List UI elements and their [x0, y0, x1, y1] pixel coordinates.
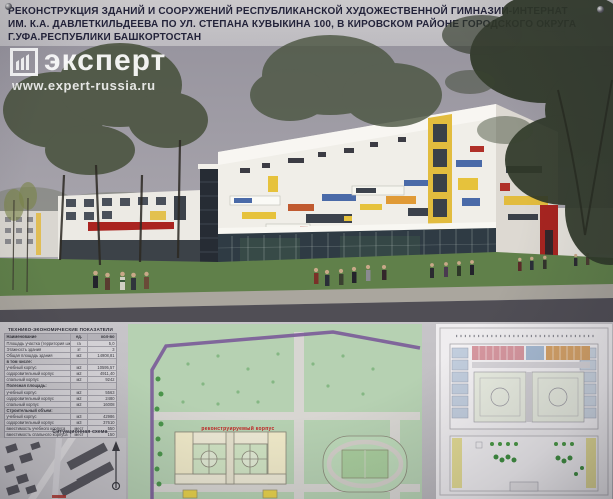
- table-cell: Площадь участка (территория школы): [5, 341, 70, 346]
- expert-columns-logo-icon: [10, 48, 38, 76]
- table-cell: Общая площадь здания: [5, 353, 70, 358]
- expert-watermark: эксперт www.expert-russia.ru: [10, 46, 166, 93]
- table-cell: Этажность здания: [5, 347, 70, 352]
- table-cell: 5,0: [88, 341, 116, 346]
- tep-table-title: ТЕХНИКО-ЭКОНОМИЧЕСКИЕ ПОКАЗАТЕЛИ: [4, 327, 117, 332]
- table-cell: 5563: [88, 390, 116, 395]
- table-cell: [70, 359, 88, 364]
- table-cell: [88, 383, 116, 388]
- stadium: [323, 436, 407, 492]
- table-cell: 37610: [88, 420, 116, 425]
- table-header-row: Наименование ед. кол-во: [5, 334, 116, 341]
- table-cell: оздоровительный корпус: [5, 371, 70, 376]
- tep-table: ТЕХНИКО-ЭКОНОМИЧЕСКИЕ ПОКАЗАТЕЛИ Наимено…: [4, 327, 117, 439]
- table-cell: [88, 408, 116, 413]
- table-header-cell: Наименование: [5, 334, 70, 340]
- table-cell: 9242: [88, 377, 116, 382]
- table-header-cell: кол-во: [88, 334, 116, 340]
- table-cell: Полезная площадь:: [5, 383, 70, 388]
- table-cell: [88, 359, 116, 364]
- table-header-cell: ед.: [70, 334, 88, 340]
- table-cell: м2: [70, 353, 88, 358]
- mounting-pin-right: [597, 6, 604, 13]
- table-cell: 10595,57: [88, 365, 116, 370]
- table-cell: м3: [70, 414, 88, 419]
- table-cell: [70, 383, 88, 388]
- left-wing-building: [58, 190, 202, 263]
- tep-table-grid: Наименование ед. кол-во Площадь участка …: [4, 333, 117, 439]
- table-cell: м3: [70, 420, 88, 425]
- table-cell: 2480: [88, 396, 116, 401]
- table-cell: 14908,81: [88, 353, 116, 358]
- master-plan: [128, 324, 422, 499]
- table-cell: в том числе:: [5, 359, 70, 364]
- table-cell: 4911,40: [88, 371, 116, 376]
- glass-stair-tower: [198, 164, 220, 263]
- upper-floor-plan: [450, 344, 598, 429]
- table-cell: 16008: [88, 402, 116, 407]
- landscape-plan: [436, 324, 612, 499]
- table-cell: м2: [70, 402, 88, 407]
- table-cell: оздоровительный корпус: [5, 420, 70, 425]
- situational-scheme-map: [0, 438, 126, 499]
- table-cell: учебный корпус: [5, 414, 70, 419]
- table-cell: учебный корпус: [5, 365, 70, 370]
- billboard-poster: РЕКОНСТРУКЦИЯ ЗДАНИЙ И СООРУЖЕНИЙ РЕСПУБ…: [0, 0, 613, 499]
- watermark-url: www.expert-russia.ru: [12, 78, 166, 93]
- reconstructed-building-label: реконструируемый корпус: [193, 426, 283, 432]
- lower-landscape-plan: [450, 436, 598, 491]
- table-cell: Строительный объем:: [5, 408, 70, 413]
- table-cell: м2: [70, 377, 88, 382]
- table-cell: учебный корпус: [5, 390, 70, 395]
- reconstructed-building-footprint: [175, 432, 286, 484]
- table-cell: га: [70, 341, 88, 346]
- table-cell: спальный корпус: [5, 377, 70, 382]
- table-cell: м2: [70, 390, 88, 395]
- watermark-brand: эксперт: [44, 46, 166, 76]
- map-red-label: [52, 495, 66, 498]
- mounting-pin-left: [5, 3, 12, 10]
- situational-scheme-label: Ситуационная схема: [36, 429, 124, 435]
- table-cell: м2: [70, 371, 88, 376]
- table-cell: эт: [70, 347, 88, 352]
- table-cell: 3: [88, 347, 116, 352]
- table-cell: оздоровительный корпус: [5, 396, 70, 401]
- table-cell: м2: [70, 396, 88, 401]
- table-cell: м2: [70, 365, 88, 370]
- table-cell: 42986: [88, 414, 116, 419]
- table-cell: [70, 408, 88, 413]
- table-cell: спальный корпус: [5, 402, 70, 407]
